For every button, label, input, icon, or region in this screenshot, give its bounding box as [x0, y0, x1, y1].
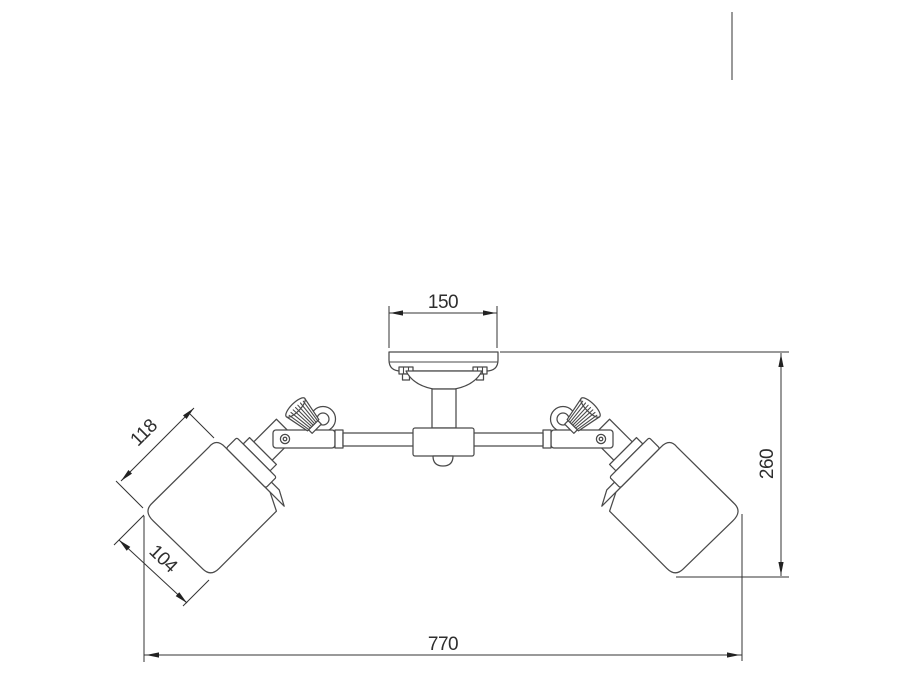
dimension-label-150: 150: [428, 292, 458, 313]
hub-finial: [433, 456, 453, 466]
arrowhead-left: [146, 652, 159, 657]
technical-drawing-page: 150 770 260 118 104: [0, 0, 900, 675]
center-hub: [413, 428, 474, 456]
arrowhead-right: [727, 652, 740, 657]
center-mount: [389, 352, 498, 466]
arrowhead-left: [390, 310, 403, 315]
arrowhead-bottom: [778, 562, 783, 575]
fixture-dimension-drawing: 150 770 260 118 104: [0, 0, 900, 675]
arrowhead-right: [483, 310, 496, 315]
center-stem: [432, 389, 456, 428]
canopy-trumpet: [406, 371, 482, 389]
arm-end-cap: [335, 430, 343, 448]
lamp-assembly-left: [144, 395, 417, 579]
dimension-canopy-width: 150: [389, 292, 497, 348]
dimension-label-260: 260: [757, 449, 778, 479]
lamp-assembly-right: [469, 395, 742, 579]
arm-bar: [343, 433, 417, 446]
dimension-line: [121, 408, 194, 481]
arrowhead-top: [778, 354, 783, 367]
dimension-label-104: 104: [145, 541, 182, 578]
pivot-screw-center: [283, 437, 287, 441]
dimension-label-770: 770: [428, 634, 458, 655]
